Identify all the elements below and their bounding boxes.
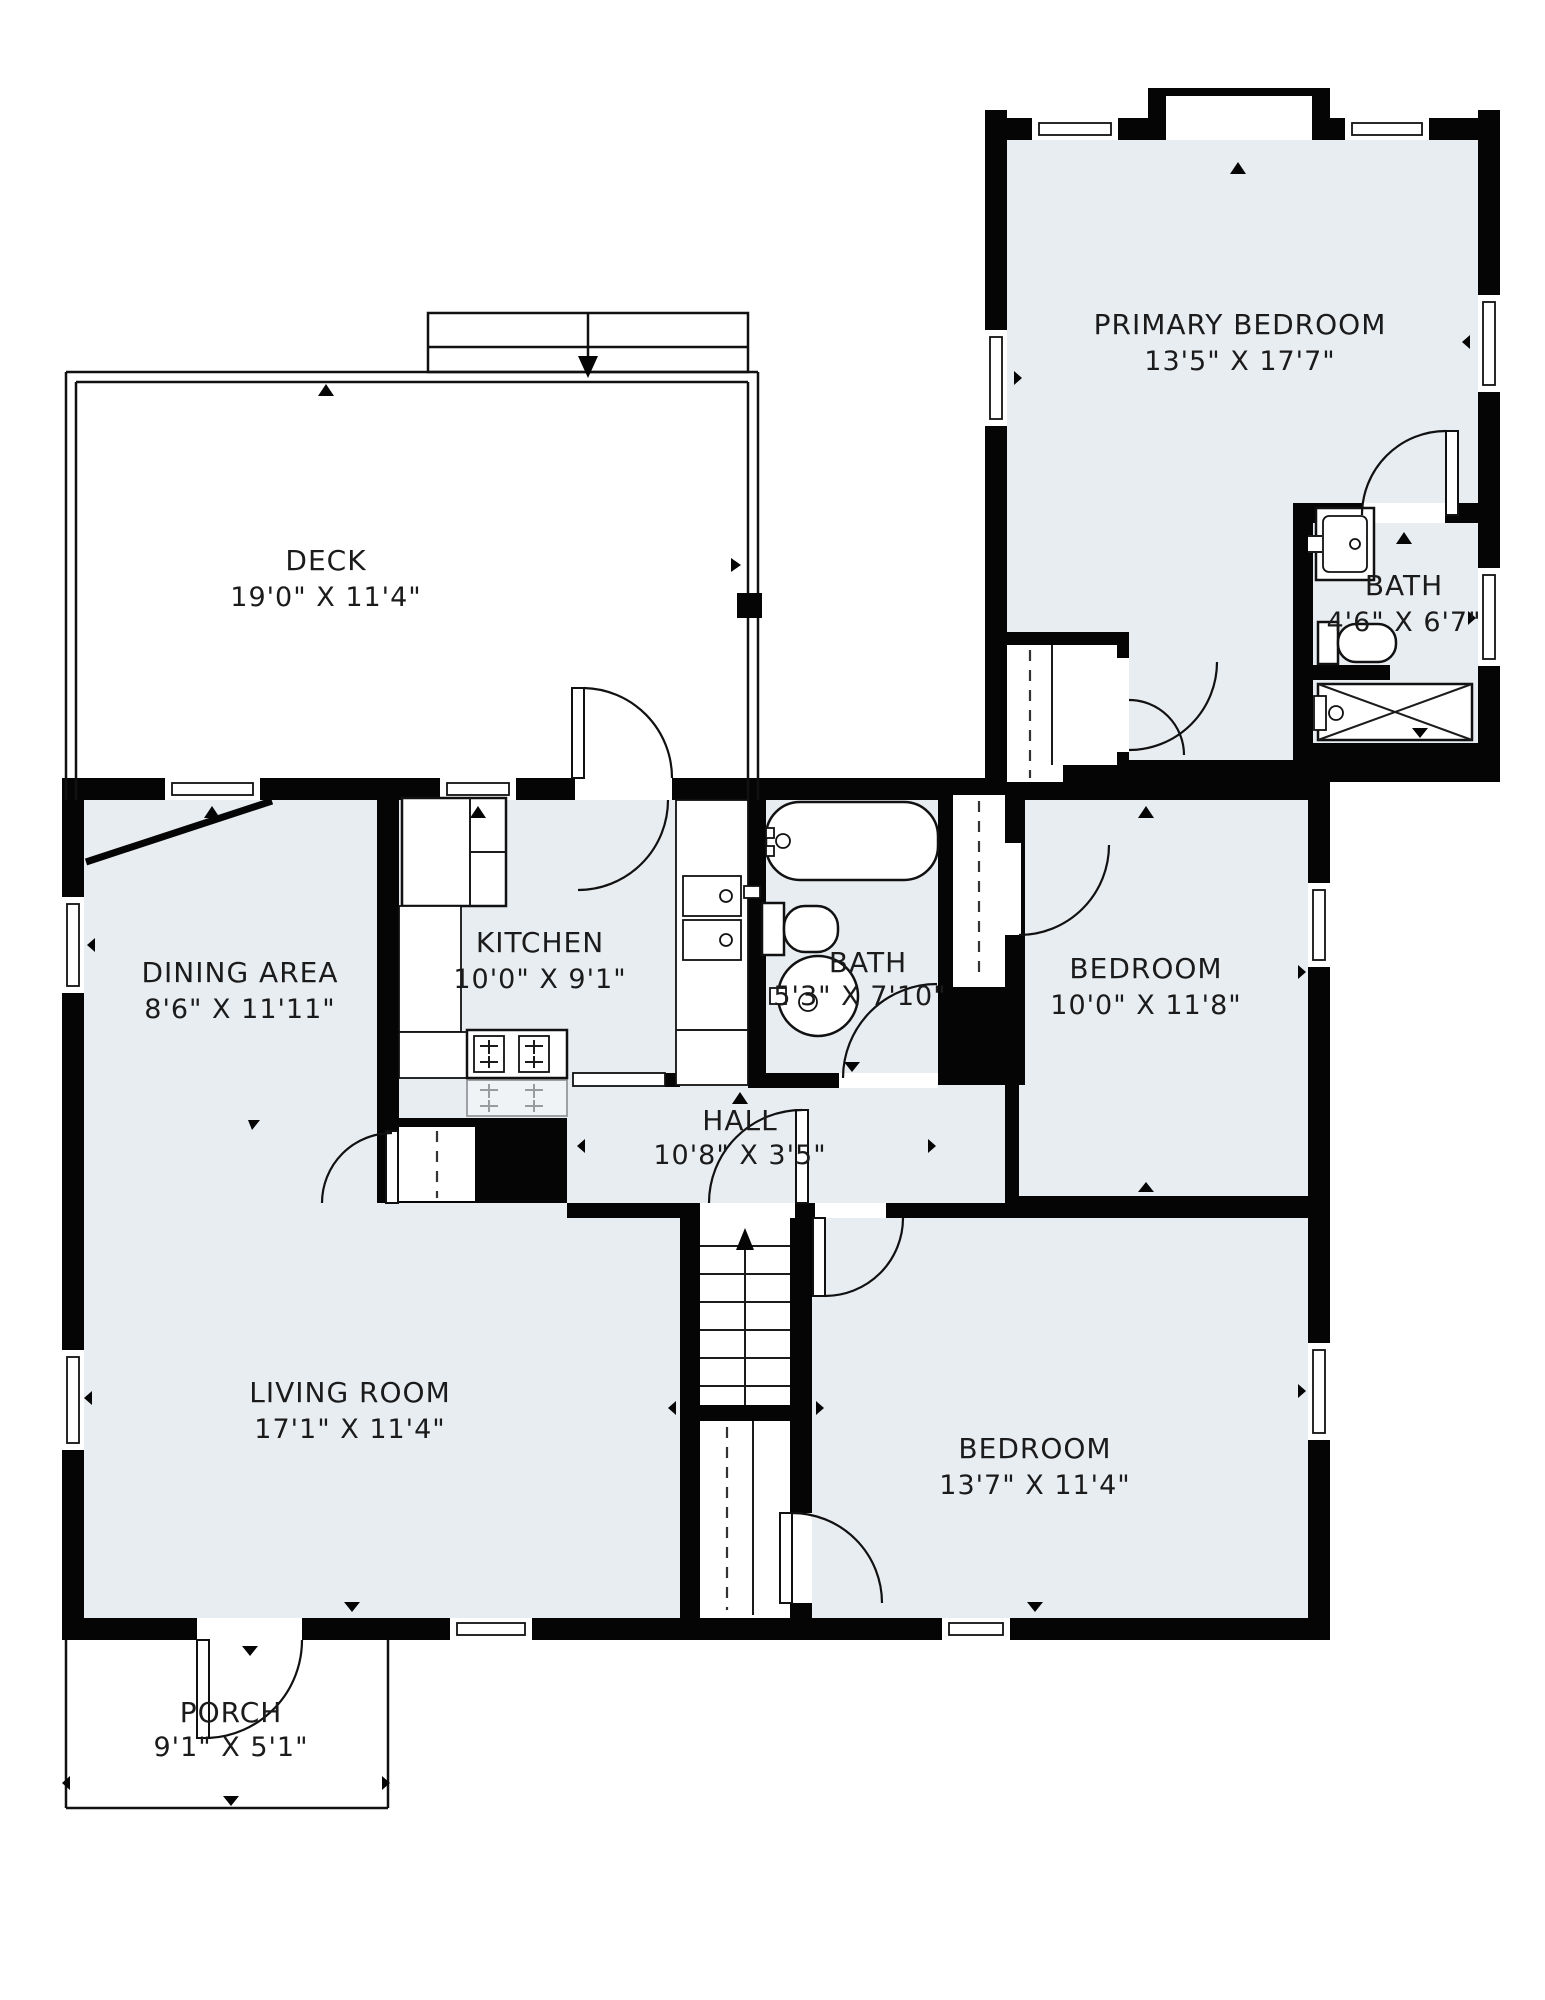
window-dining-left [62,897,84,993]
hall-label: HALL [702,1104,777,1137]
bedroom-bottom-label: BEDROOM [958,1432,1111,1465]
primary-bedroom-dims: 13'5" X 17'7" [1144,346,1335,377]
bedroom-middle-door-opening [1003,843,1021,935]
primary-closet [1007,645,1117,782]
deck-dims: 19'0" X 11'4" [230,582,421,613]
window-primary-top-right [1345,118,1429,140]
hall-bath-door-opening [839,1073,938,1088]
window-bedroom-bottom-right [1308,1343,1330,1440]
primary-bath-dims: 4'6" X 6'7" [1326,607,1481,638]
living-room-label: LIVING ROOM [249,1376,451,1409]
kitchen-counter-left [399,906,461,1032]
bedroom-bottom-dims: 13'7" X 11'4" [939,1470,1130,1501]
primary-closet-opening [1117,658,1129,752]
porch-label: PORCH [180,1696,283,1729]
kitchen-label: KITCHEN [476,926,604,959]
hall-bath-label: BATH [829,946,907,979]
bathtub-icon [766,802,938,880]
window-primary-right [1478,295,1500,392]
window-primary-top-left [1032,118,1118,140]
bedroom-middle-dims: 10'0" X 11'8" [1050,990,1241,1021]
fridge-icon [402,798,506,906]
living-room-dims: 17'1" X 11'4" [254,1414,445,1445]
kitchen-sink-icon [676,800,760,1085]
kitchen-hall-opening [573,1073,665,1086]
deck-steps-arrow [578,356,598,378]
kitchen-dims: 10'0" X 9'1" [453,964,626,995]
porch-door-opening [197,1618,302,1640]
deck-post [737,593,762,618]
window-bedroom-middle-right [1308,883,1330,967]
window-primary-left [985,330,1007,426]
floor-plan-svg: DECK 19'0" X 11'4" PRIMARY BEDROOM 13'5"… [0,0,1545,2000]
toilet-icon-hall-bath [762,903,838,955]
deck-door-opening [575,778,672,800]
porch-dims: 9'1" X 5'1" [153,1732,308,1763]
linen-closet [953,795,1005,987]
stairs-closet-door-opening [790,1513,812,1603]
stove-icon [467,1030,567,1116]
window-dining-top [165,778,260,800]
floor-plan-page: DECK 19'0" X 11'4" PRIMARY BEDROOM 13'5"… [0,0,1545,2000]
shower-icon [1314,684,1472,740]
window-living-left [62,1350,84,1450]
pantry-closet [399,1127,475,1201]
window-kitchen-top [440,778,516,800]
deck-outline [66,313,762,800]
primary-bath-label: BATH [1365,569,1443,602]
bedroom-middle-label: BEDROOM [1069,952,1222,985]
window-living-bottom [450,1618,532,1640]
stairs-opening [700,1203,795,1218]
window-bedroom-bottom [942,1618,1010,1640]
hall-bath-dims: 5'3" X 7'10" [773,981,946,1012]
dining-area-dims: 8'6" X 11'11" [144,994,335,1025]
under-stairs-closet [700,1421,790,1618]
staircase [700,1218,790,1405]
kitchen-counter-corner [399,1032,467,1078]
hall-dims: 10'8" X 3'5" [653,1140,826,1171]
dining-area-label: DINING AREA [141,956,338,989]
bedroom-bottom-door-opening [815,1203,886,1218]
primary-bedroom-label: PRIMARY BEDROOM [1094,308,1387,341]
deck-steps [428,313,748,378]
deck-label: DECK [285,544,366,577]
